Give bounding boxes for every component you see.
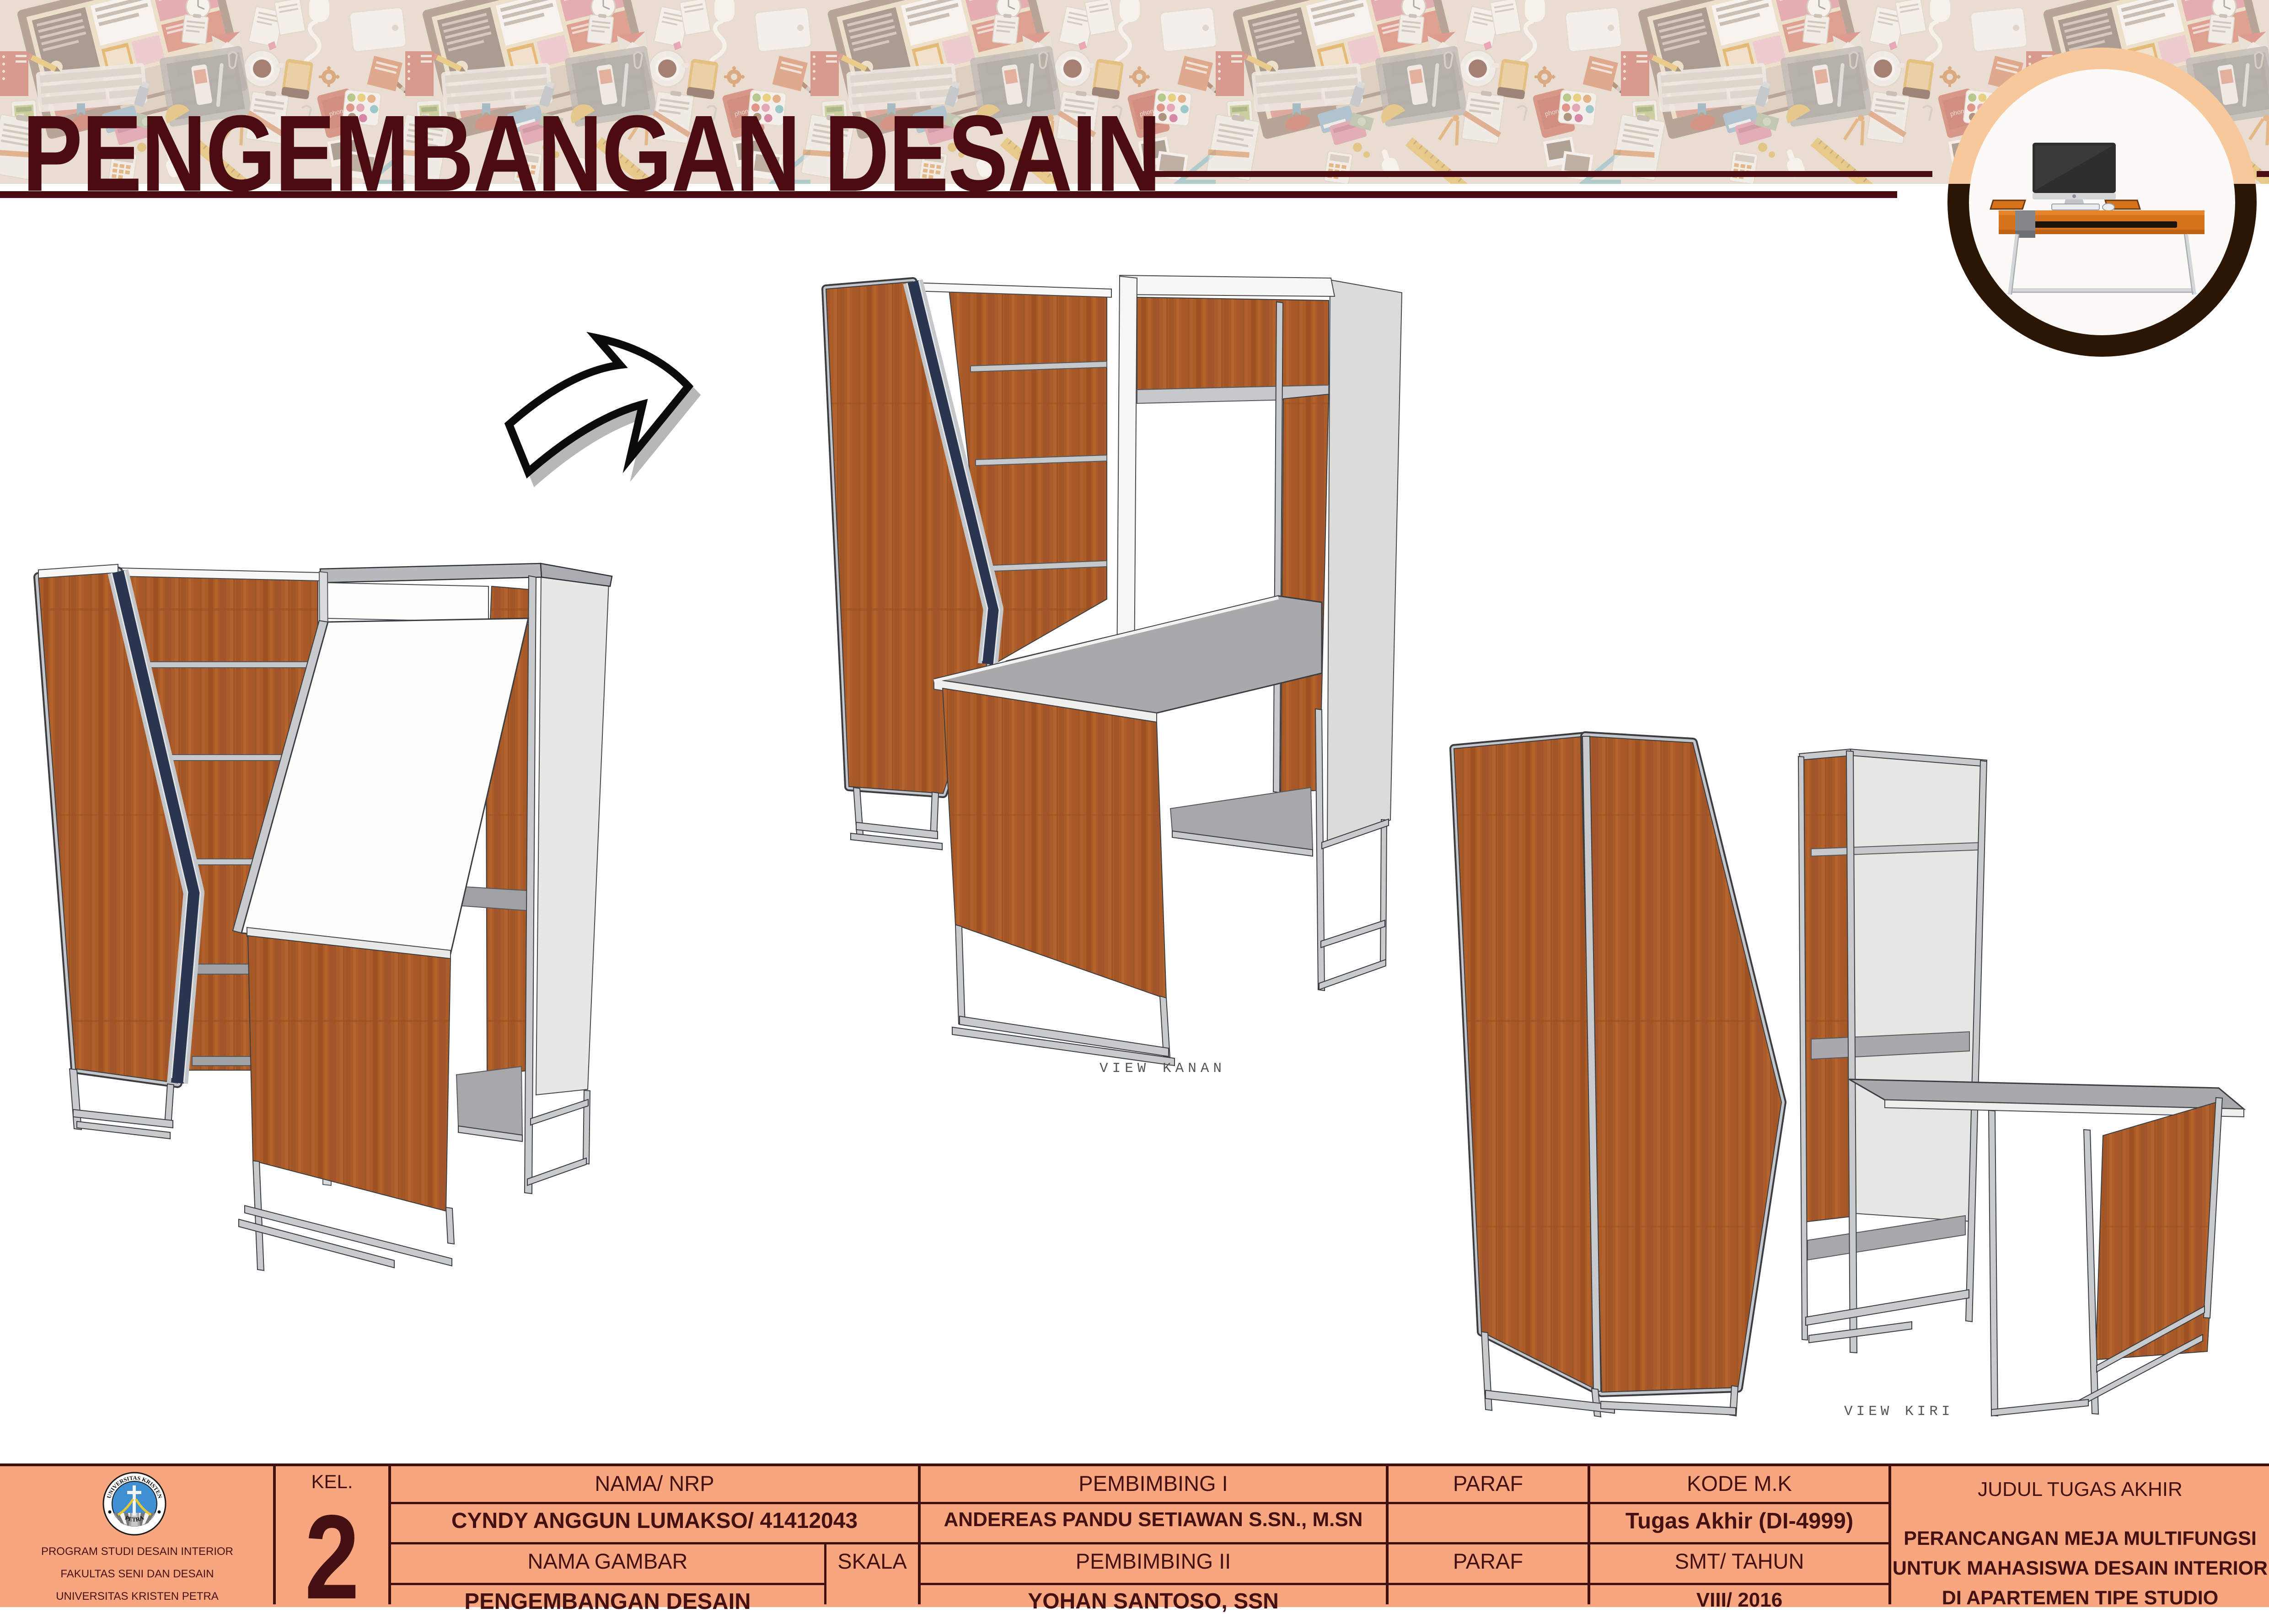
svg-text:VIEW KANAN: VIEW KANAN <box>1100 1061 1226 1077</box>
svg-text:VIEW KIRI: VIEW KIRI <box>1844 1404 1953 1420</box>
